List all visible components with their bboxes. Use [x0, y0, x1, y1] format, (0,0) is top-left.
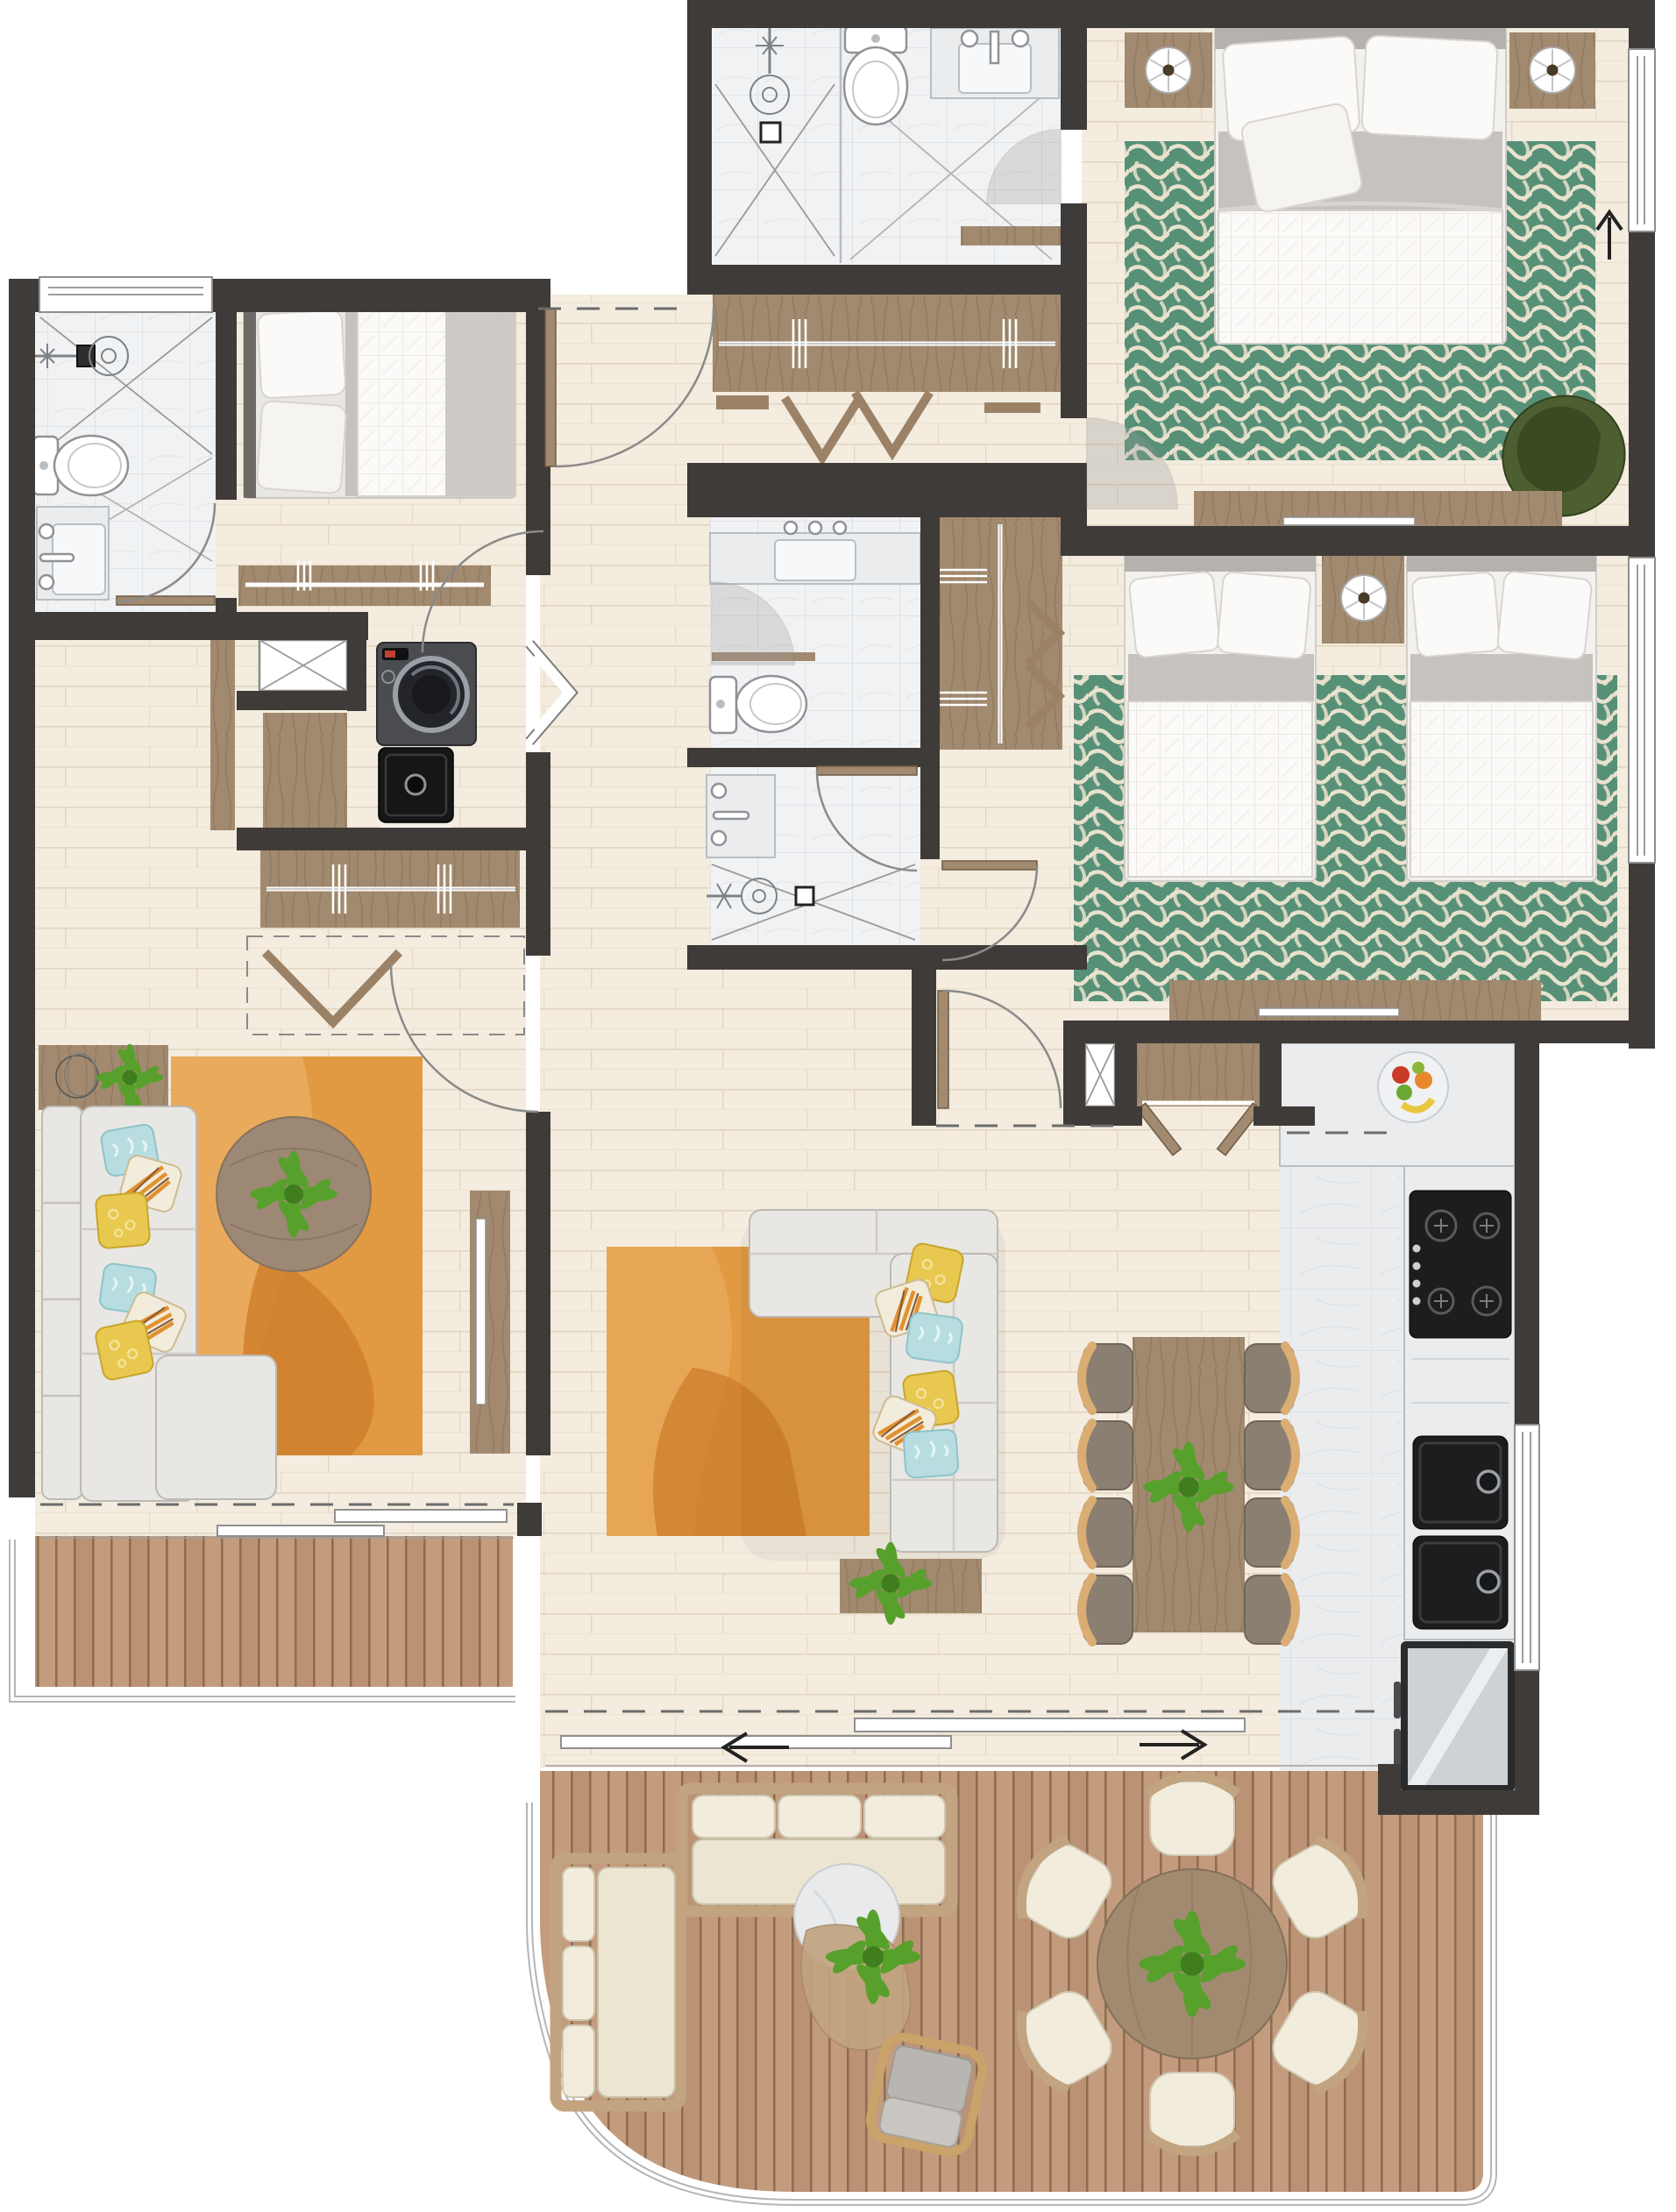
single-bed-left [1125, 551, 1316, 881]
tv-screen [476, 1219, 486, 1405]
floor-plan-stage [0, 0, 1676, 2212]
washing-machine [377, 643, 476, 745]
tv [1283, 517, 1415, 525]
sink-1 [1413, 1436, 1508, 1529]
lamp [1146, 47, 1191, 93]
bench [961, 226, 1069, 245]
bedroom2-window [1629, 558, 1655, 863]
laundry-cabinet-left [210, 637, 235, 830]
fridge [1394, 1641, 1515, 1792]
master-window [1629, 49, 1655, 231]
shower-drain [761, 123, 780, 142]
shaft-duct [1085, 1043, 1115, 1106]
sink-2 [1413, 1536, 1508, 1629]
tv [1259, 1008, 1399, 1016]
gas-hob [1410, 1191, 1511, 1338]
bedroom2-closet [938, 517, 1062, 750]
vanity [931, 28, 1059, 98]
floor-plan [0, 0, 1676, 2212]
drain [796, 887, 813, 905]
single-bed [244, 305, 515, 498]
double-bed [1215, 26, 1506, 344]
toilet [844, 26, 907, 124]
shower-valve [77, 345, 95, 366]
kitchen-window [1515, 1425, 1539, 1670]
lamp [1530, 47, 1575, 93]
fruit-bowl [1378, 1052, 1448, 1122]
laundry-cabinet [263, 713, 347, 830]
outdoor-sofa-2seat [556, 1859, 680, 2106]
single-bed-right [1407, 551, 1596, 881]
dining-set [1082, 1337, 1296, 1644]
toilet [33, 436, 128, 495]
bathroom3-window [39, 277, 212, 312]
balcony-deck [35, 1536, 513, 1687]
vanity [37, 507, 109, 600]
shaft-duct [259, 640, 347, 691]
lamp [1341, 575, 1387, 621]
toilet [710, 676, 806, 733]
